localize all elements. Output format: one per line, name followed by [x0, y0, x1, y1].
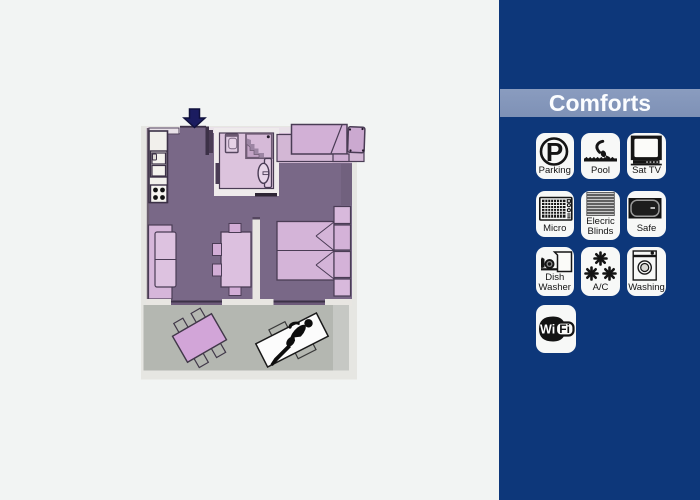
svg-text:Fi: Fi [559, 322, 570, 336]
svg-text:P: P [545, 137, 562, 167]
svg-text:Wi: Wi [540, 322, 555, 336]
